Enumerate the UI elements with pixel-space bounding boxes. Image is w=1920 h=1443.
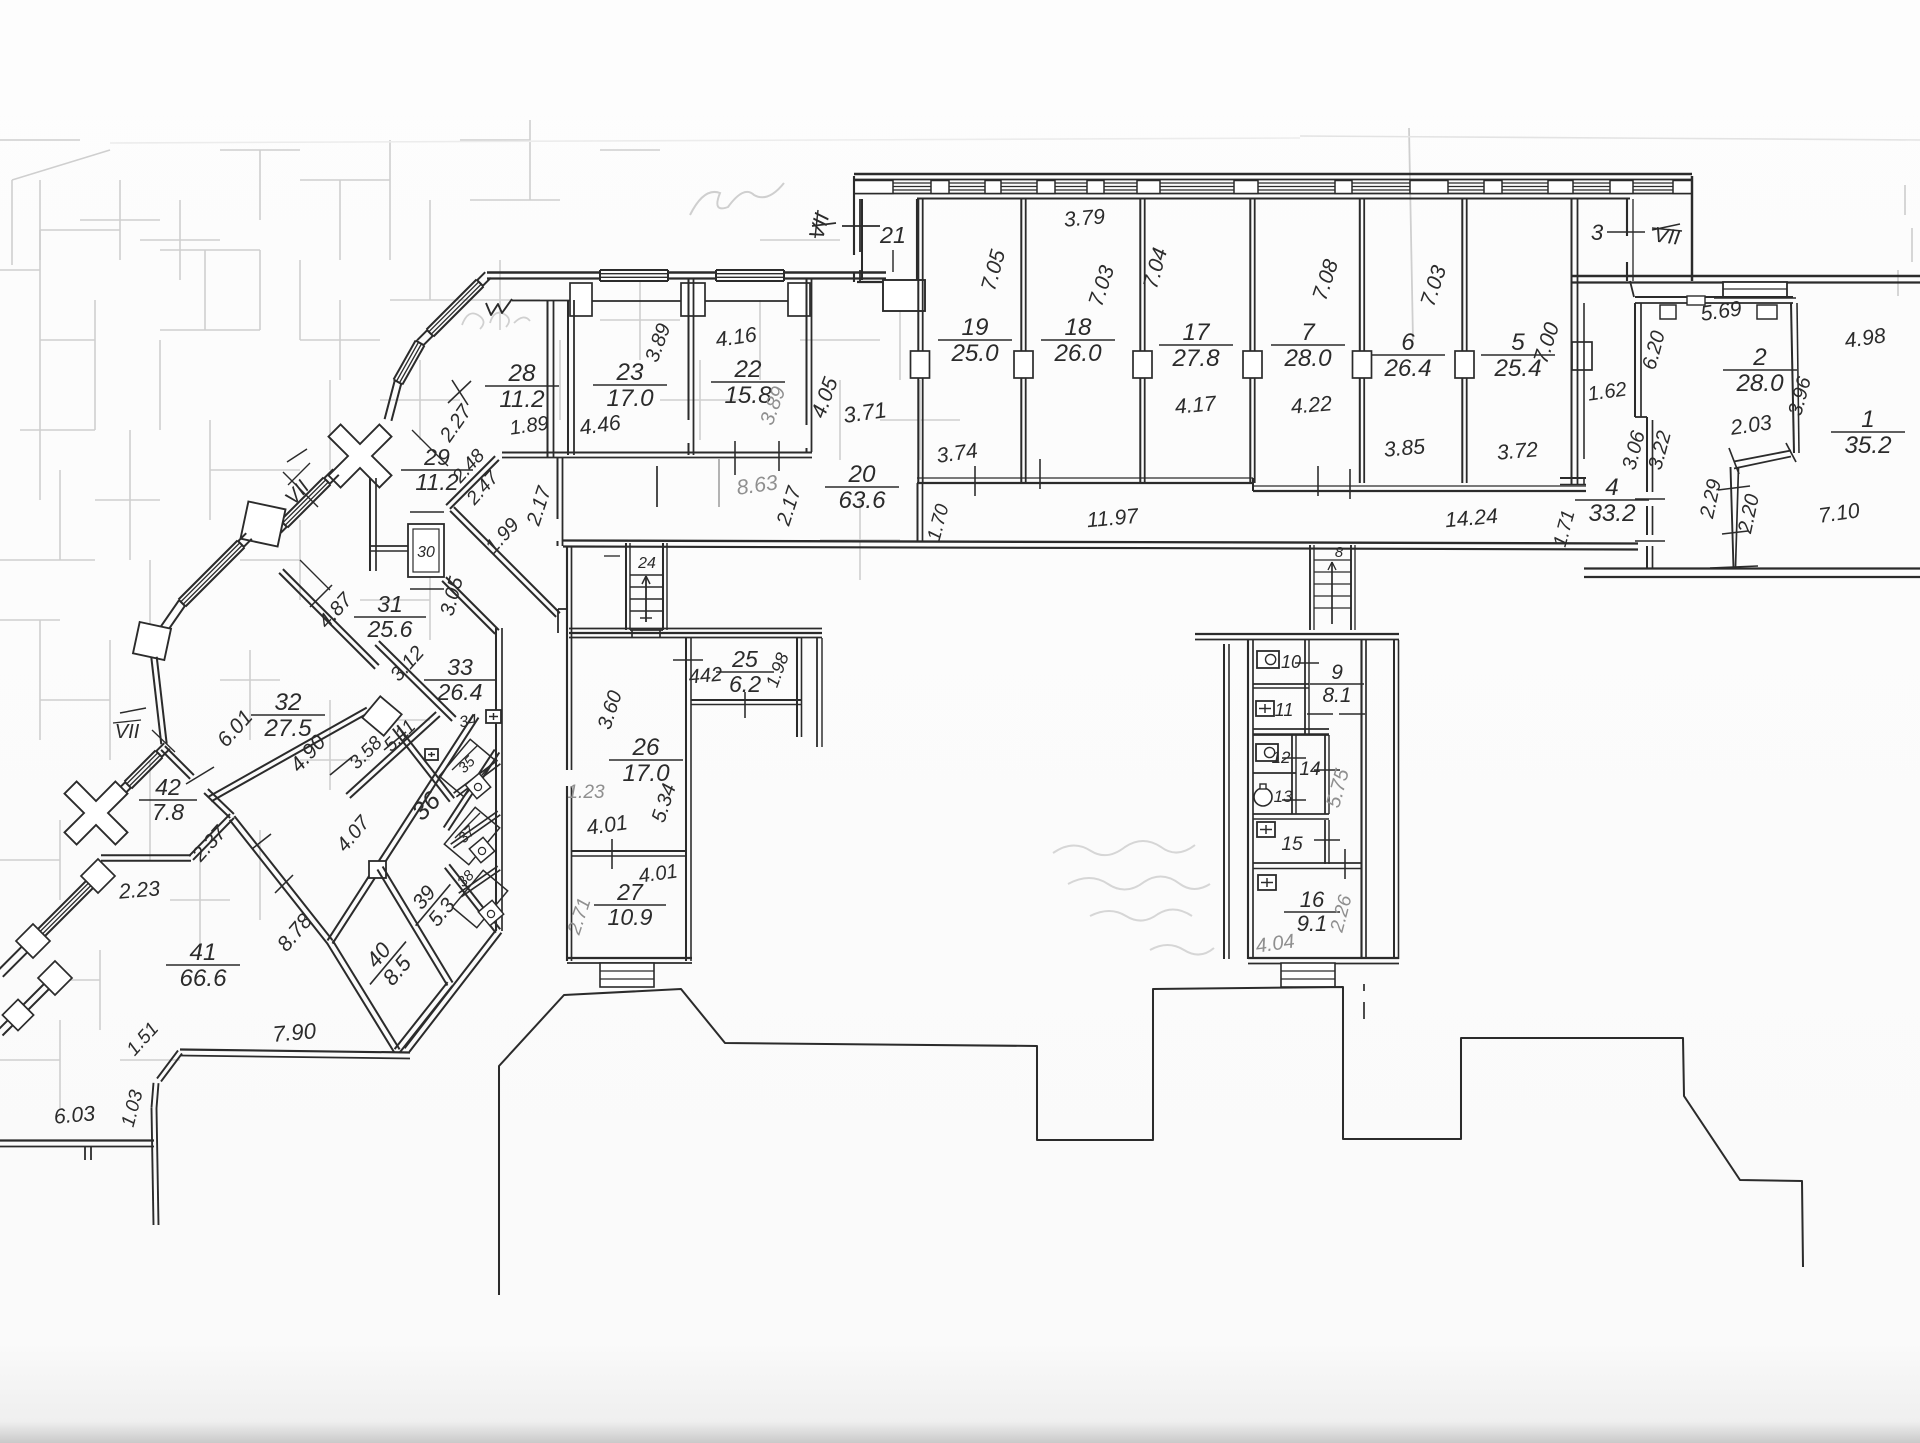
svg-text:4.17: 4.17	[1174, 392, 1218, 419]
svg-text:63.6: 63.6	[838, 487, 886, 514]
svg-text:34: 34	[458, 712, 479, 732]
svg-text:42: 42	[155, 774, 181, 800]
svg-text:26: 26	[632, 734, 660, 761]
svg-text:13: 13	[1274, 787, 1293, 806]
svg-text:7: 7	[1301, 319, 1316, 346]
svg-text:3.85: 3.85	[1383, 435, 1426, 462]
svg-text:21: 21	[879, 222, 906, 248]
svg-text:25.6: 25.6	[367, 616, 413, 642]
svg-text:11.97: 11.97	[1086, 505, 1140, 533]
svg-text:31: 31	[377, 591, 403, 617]
svg-text:1.23: 1.23	[567, 782, 605, 803]
svg-text:VII: VII	[115, 721, 140, 743]
svg-text:7.8: 7.8	[152, 799, 184, 825]
svg-text:41: 41	[190, 939, 217, 966]
svg-text:28: 28	[508, 360, 536, 387]
svg-text:66.6: 66.6	[179, 965, 227, 992]
svg-text:22: 22	[734, 356, 762, 383]
svg-text:16: 16	[1300, 887, 1325, 912]
svg-text:4: 4	[1605, 474, 1618, 501]
svg-text:2: 2	[1752, 344, 1767, 371]
svg-text:6: 6	[1401, 329, 1415, 356]
svg-text:3.79: 3.79	[1063, 205, 1106, 232]
svg-text:442: 442	[688, 664, 723, 689]
svg-text:6.03: 6.03	[53, 1102, 96, 1129]
svg-text:8: 8	[1335, 545, 1344, 561]
svg-text:4.22: 4.22	[1290, 392, 1333, 419]
svg-text:7.90: 7.90	[272, 1018, 318, 1047]
svg-text:29: 29	[423, 444, 450, 470]
svg-text:1: 1	[1861, 406, 1874, 433]
svg-text:14.24: 14.24	[1444, 505, 1499, 533]
svg-text:25: 25	[731, 646, 758, 672]
svg-text:26.4: 26.4	[437, 679, 483, 705]
svg-text:33: 33	[447, 654, 473, 680]
svg-text:8.1: 8.1	[1322, 684, 1351, 707]
svg-text:35.2: 35.2	[1844, 432, 1892, 459]
svg-text:28.0: 28.0	[1283, 345, 1332, 372]
svg-text:25.0: 25.0	[950, 340, 999, 367]
svg-text:26.0: 26.0	[1053, 340, 1102, 367]
svg-text:20: 20	[848, 461, 876, 488]
svg-text:23: 23	[616, 359, 644, 386]
svg-text:33.2: 33.2	[1588, 500, 1636, 527]
svg-text:15: 15	[1281, 834, 1303, 855]
svg-text:27.8: 27.8	[1171, 345, 1220, 372]
svg-text:11.2: 11.2	[499, 386, 545, 413]
svg-text:11: 11	[1275, 700, 1294, 720]
svg-text:27.5: 27.5	[263, 715, 312, 742]
svg-text:18: 18	[1065, 314, 1092, 341]
svg-text:10: 10	[1281, 652, 1301, 672]
svg-text:26.4: 26.4	[1383, 355, 1431, 382]
svg-text:28.0: 28.0	[1735, 370, 1784, 397]
svg-text:17.0: 17.0	[606, 385, 654, 412]
svg-text:2.23: 2.23	[117, 877, 161, 904]
svg-text:32: 32	[275, 689, 302, 716]
svg-text:9: 9	[1331, 661, 1343, 684]
svg-text:17: 17	[1183, 319, 1211, 346]
svg-text:19: 19	[962, 314, 989, 341]
svg-text:30: 30	[417, 544, 435, 561]
svg-text:3: 3	[1591, 220, 1604, 245]
svg-text:24: 24	[637, 555, 656, 572]
svg-text:10.9: 10.9	[608, 904, 653, 930]
svg-text:9.1: 9.1	[1297, 911, 1328, 936]
svg-text:5: 5	[1511, 329, 1525, 356]
svg-text:3.72: 3.72	[1496, 438, 1539, 465]
